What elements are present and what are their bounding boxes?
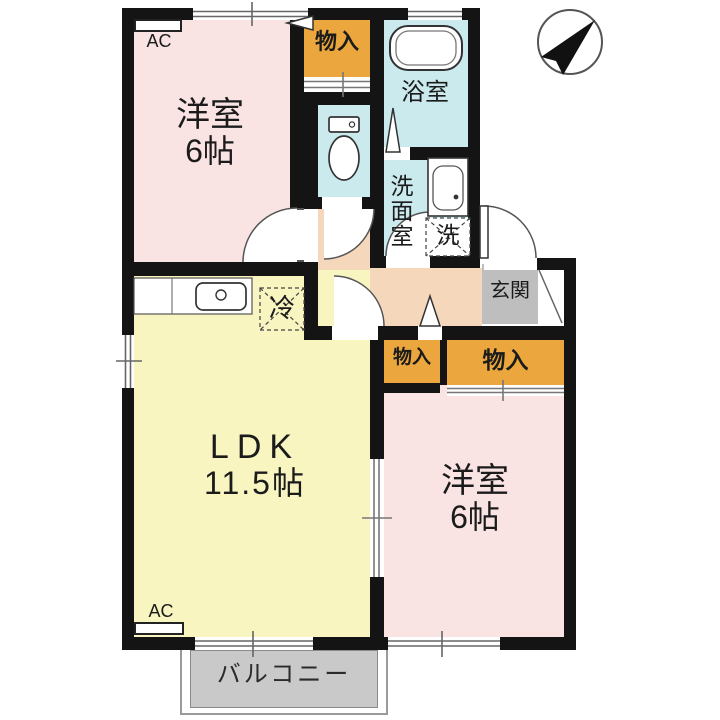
room-name: LDK (150, 428, 360, 466)
room-name: 洋室 (400, 462, 550, 500)
room-size: 6帖 (400, 500, 550, 536)
room-label-bathroom: 浴室 (376, 80, 474, 107)
wash-basin-icon (428, 158, 468, 216)
room-label-storage-top: 物入 (304, 30, 370, 55)
folding-door-storage (420, 296, 440, 326)
ac-unit-box-bottom (134, 622, 184, 635)
door-swing-entrance (480, 206, 536, 258)
door-swing-toilet (324, 209, 374, 259)
room-label-storage-left: 物入 (384, 347, 440, 368)
window (116, 335, 142, 388)
room-label-bedroom-bottom-right: 洋室 6帖 (400, 462, 550, 536)
room-label-bedroom-top-left: 洋室 6帖 (130, 96, 290, 170)
sliding-door (362, 459, 392, 577)
room-name: 洋室 (130, 96, 290, 134)
room-label-storage-right: 物入 (447, 348, 564, 374)
window (388, 631, 500, 657)
north-arrow-icon (538, 10, 602, 75)
floor-plan: AC 洋室 6帖 物入 浴室 洗面室 洗 冷 玄関 物入 物入 LDK 11.5… (0, 0, 720, 720)
ac-label-top: AC (134, 31, 184, 51)
room-size: 11.5帖 (150, 466, 360, 502)
bathtub-icon (390, 26, 462, 70)
ac-label-bottom: AC (136, 601, 186, 621)
door-swing-bedroom-top (243, 208, 297, 262)
washing-machine-label: 洗 (426, 223, 470, 249)
kitchen-sink-icon (134, 278, 252, 314)
sliding-door (447, 380, 564, 401)
room-size: 6帖 (130, 134, 290, 170)
sliding-door (304, 72, 370, 97)
room-label-entrance: 玄関 (482, 280, 538, 302)
window (195, 631, 313, 657)
entrance-diagonal-mark (539, 270, 562, 323)
room-label-balcony: バルコニー (190, 662, 378, 689)
toilet-icon (329, 117, 359, 180)
plan-symbols-layer (0, 0, 720, 720)
door-swing-ldk (334, 276, 384, 326)
room-label-washroom: 洗面室 (386, 162, 412, 260)
folding-door-bath (386, 108, 400, 152)
room-label-ldk: LDK 11.5帖 (150, 428, 360, 502)
window (408, 8, 462, 20)
refrigerator-label: 冷 (260, 294, 304, 323)
